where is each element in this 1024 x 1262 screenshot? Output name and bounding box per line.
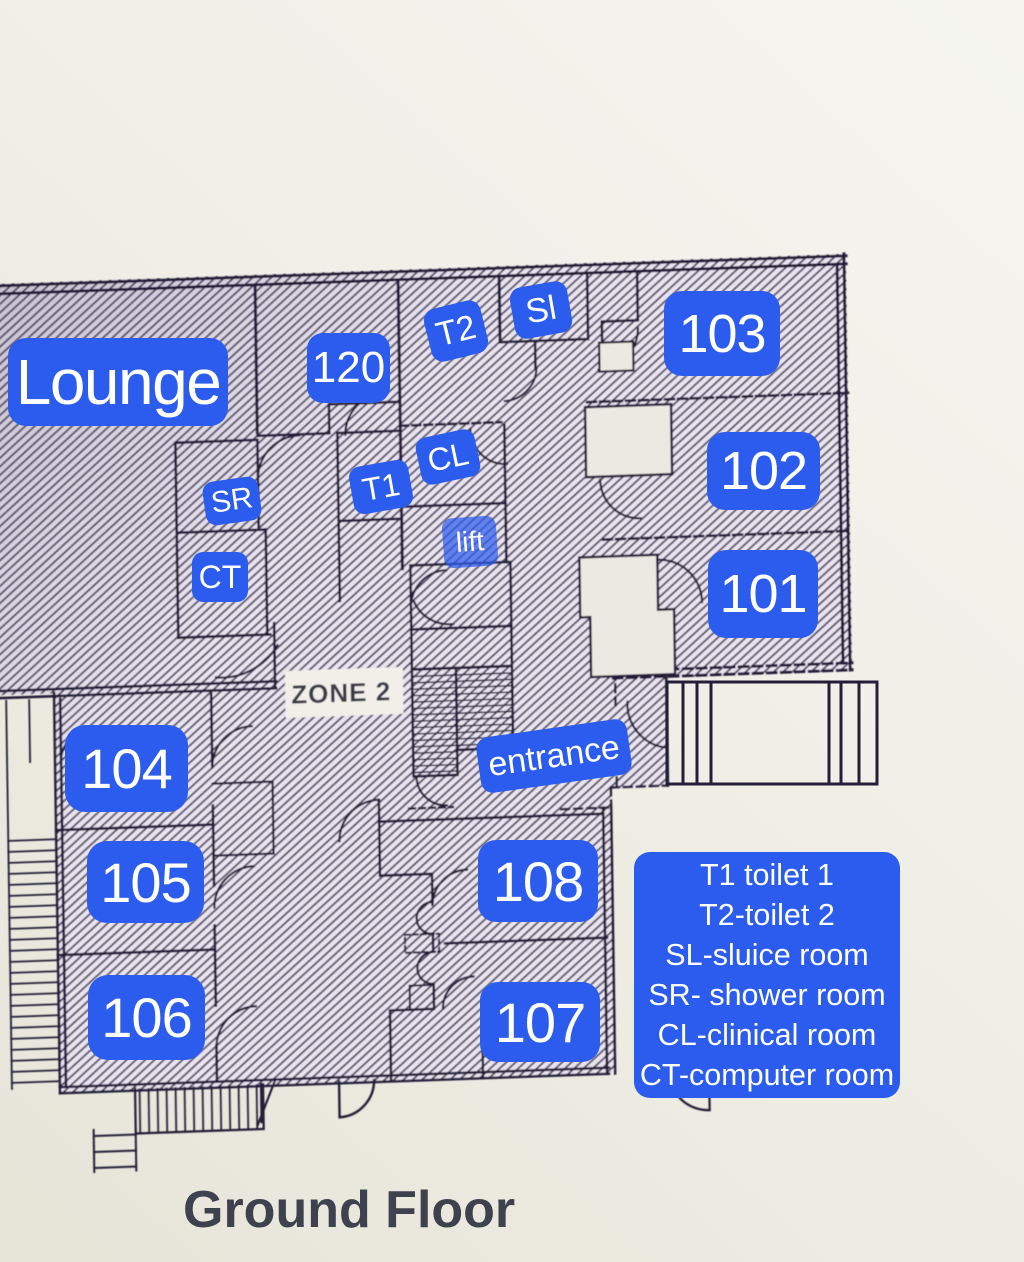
svg-text:ZONE 2: ZONE 2 [291, 676, 391, 710]
